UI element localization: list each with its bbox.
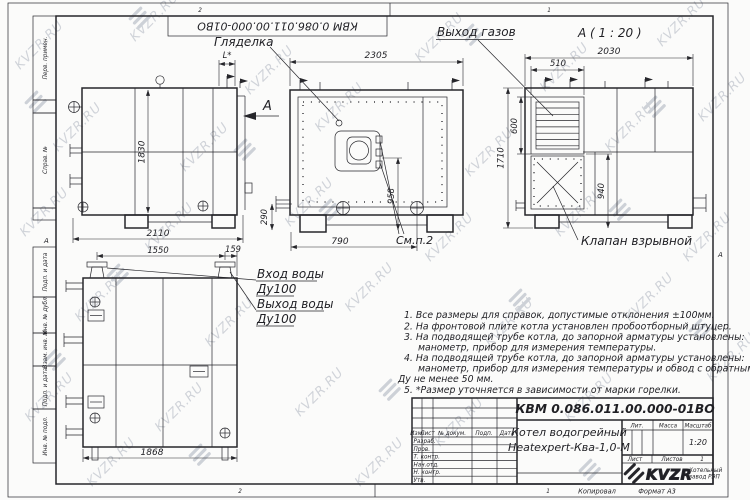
title-product-name: Котел водогрейный bbox=[511, 426, 627, 439]
leader-line bbox=[380, 163, 404, 234]
dim-value-600: 600 bbox=[509, 118, 519, 134]
note-line: 2. На фронтовой плите котла установлен п… bbox=[404, 322, 732, 333]
label-water-out: Выход воды bbox=[257, 297, 333, 311]
doc-number-rotated: КВМ 0.086.011.00.000-01ВО bbox=[197, 20, 358, 33]
note-line: манометр, прибор для измерения температу… bbox=[418, 343, 656, 354]
dim-value-940: 940 bbox=[596, 183, 606, 199]
label-see-item: См.п.2 bbox=[396, 234, 433, 247]
sheets-label: Листов bbox=[660, 457, 683, 463]
view-plan: 1550 159 1868 Вход воды Ду100 Выход воды… bbox=[64, 244, 333, 462]
margin-label: Взам. инв. № bbox=[43, 330, 49, 369]
note-line: 5. *Размер уточняется в зависимости от м… bbox=[404, 385, 681, 396]
logo-text: KVZR bbox=[646, 468, 692, 484]
hinge-tab bbox=[376, 149, 382, 156]
margin-label: Инв. № подл. bbox=[43, 416, 49, 455]
dim-value-1550: 1550 bbox=[147, 245, 168, 255]
watermark-text: KVZR.RU bbox=[242, 43, 297, 98]
dim-value-2110: 2110 bbox=[147, 229, 170, 239]
col-header-doc: № докум. bbox=[437, 431, 466, 437]
col-header-list: Лист bbox=[419, 431, 435, 437]
margin-label: Подп. и дата bbox=[43, 252, 49, 291]
flue-outlet-louver bbox=[536, 102, 579, 149]
water-flange-cap bbox=[87, 262, 107, 267]
dim-value-1710: 1710 bbox=[496, 147, 506, 168]
watermark-text: KVZR.RU bbox=[654, 0, 709, 50]
drawing-sheet: KVZR.RU KVZR.RU KVZR.RU KVZR.RU KVZR.RU … bbox=[0, 0, 750, 500]
watermark-logo-icon bbox=[24, 90, 47, 113]
section-title: А ( 1 : 20 ) bbox=[577, 26, 642, 40]
zone-number: 1 bbox=[546, 489, 550, 495]
vent-flag bbox=[227, 74, 235, 79]
watermark-text: KVZR.RU bbox=[22, 370, 77, 425]
format-label: Формат А3 bbox=[638, 488, 676, 496]
watermark-text: KVZR.RU bbox=[12, 18, 67, 73]
leader-line bbox=[380, 141, 399, 234]
row-label: Утв. bbox=[414, 478, 426, 484]
dim-value-159: 159 bbox=[225, 244, 241, 254]
hinge-tab bbox=[376, 136, 382, 143]
fold-marker: А bbox=[43, 237, 49, 245]
watermark-logo-icon bbox=[608, 198, 631, 221]
watermark-text: KVZR.RU bbox=[352, 435, 407, 490]
notes-block: 1. Все размеры для справок, допустимые о… bbox=[397, 310, 750, 396]
watermark-text: KVZR.RU bbox=[342, 260, 397, 315]
view-arrow-label: А bbox=[262, 99, 272, 114]
watermark-logo-icon bbox=[318, 198, 341, 221]
row-label: Разраб. bbox=[414, 439, 437, 445]
watermark-logo-icon bbox=[578, 458, 601, 481]
dim-value-1830: 1830 bbox=[138, 140, 148, 163]
row-label: Пров. bbox=[414, 447, 431, 453]
label-water-in: Вход воды bbox=[257, 267, 324, 281]
watermark-text: KVZR.RU bbox=[695, 70, 750, 125]
scale-value: 1:20 bbox=[689, 438, 707, 447]
margin-label: Инв. № дубл. bbox=[43, 295, 49, 334]
note-line: 1. Все размеры для справок, допустимые о… bbox=[404, 310, 715, 321]
water-flange-cap bbox=[215, 262, 235, 267]
label-explosion-valve: Клапан взрывной bbox=[581, 234, 692, 248]
dim-value-2030: 2030 bbox=[598, 47, 621, 57]
col-header-mass: Масса bbox=[659, 424, 678, 430]
sheets-value: 1 bbox=[700, 457, 704, 463]
vent-flag bbox=[570, 77, 578, 82]
logo-icon bbox=[623, 463, 645, 485]
col-header-scale: Масштаб bbox=[684, 424, 712, 430]
sheet-label: Лист bbox=[627, 457, 643, 463]
logo-subtext: Котельный bbox=[689, 468, 723, 474]
dim-value-1868: 1868 bbox=[141, 448, 164, 458]
water-flange-pipe bbox=[90, 267, 104, 278]
vent-flag bbox=[645, 77, 653, 82]
dim-value-2305: 2305 bbox=[365, 51, 388, 61]
watermark-text: KVZR.RU bbox=[292, 365, 347, 420]
title-block: КВМ 0.086.011.00.000-01ВО Котел водогрей… bbox=[410, 398, 722, 484]
foot bbox=[668, 215, 692, 228]
copied-label: Копировал bbox=[578, 488, 616, 496]
label-gas-outlet: Выход газов bbox=[437, 25, 516, 39]
margin-label: Перв. примен. bbox=[43, 36, 49, 79]
margin-label: Подп. и дата bbox=[43, 367, 49, 406]
dim-value-510: 510 bbox=[550, 58, 566, 68]
dim-value-290: 290 bbox=[259, 209, 269, 225]
fold-marker: А bbox=[717, 251, 723, 259]
zone-number: 2 bbox=[238, 489, 242, 495]
side-body bbox=[82, 88, 237, 215]
note-line: манометр, прибор для измерения температу… bbox=[418, 364, 750, 375]
col-header-sign: Подп. bbox=[475, 431, 492, 437]
foot bbox=[212, 215, 235, 228]
vent-flag bbox=[452, 78, 460, 83]
col-header-lit: Лит. bbox=[629, 424, 643, 430]
watermark-text: KVZR.RU bbox=[602, 100, 657, 155]
title-product-name: Heatexpert-Ква-1,0-М bbox=[508, 441, 630, 454]
margin-label: Справ. № bbox=[43, 146, 49, 174]
row-label: Н. контр. bbox=[414, 470, 441, 476]
watermark-text: KVZR.RU bbox=[84, 435, 139, 490]
label-water-out-dn: Ду100 bbox=[256, 312, 297, 326]
base-recess bbox=[326, 215, 427, 225]
note-line: 3. На подводящей трубе котла, до запорно… bbox=[404, 332, 745, 343]
company-logo: KVZR Котельный завод РЭП bbox=[623, 463, 722, 485]
burner-opening bbox=[350, 141, 369, 160]
watermark-text: KVZR.RU bbox=[177, 120, 232, 175]
logo-subtext: завод РЭП bbox=[689, 475, 720, 481]
watermark-text: KVZR.RU bbox=[50, 100, 105, 155]
label-sight-glass: Гляделка bbox=[214, 35, 274, 49]
row-label: Нач.отд. bbox=[414, 462, 440, 468]
lifting-lug bbox=[156, 76, 164, 84]
zone-number: 2 bbox=[198, 8, 202, 14]
watermark-text: KVZR.RU bbox=[17, 185, 72, 240]
col-header-date: Дата bbox=[499, 431, 515, 437]
watermark-text: KVZR.RU bbox=[202, 295, 257, 350]
watermark-text: KVZR.RU bbox=[152, 380, 207, 435]
water-flange-pipe bbox=[218, 267, 232, 278]
dim-value-790: 790 bbox=[331, 237, 348, 247]
row-label: Т. контр. bbox=[414, 455, 441, 461]
view-front: 2305 790 958 290 Гляделка См.п.2 bbox=[214, 35, 463, 251]
note-line: Ду не менее 50 мм. bbox=[397, 374, 493, 385]
zone-number: 1 bbox=[547, 8, 551, 14]
foot bbox=[125, 215, 148, 228]
leader-line bbox=[478, 40, 553, 116]
dim-value-l: L* bbox=[223, 50, 232, 60]
leader-line bbox=[270, 47, 339, 121]
label-water-in-dn: Ду100 bbox=[256, 282, 297, 296]
door-handle bbox=[245, 183, 252, 193]
watermark-text: KVZR.RU bbox=[432, 395, 487, 450]
watermark-text: KVZR.RU bbox=[312, 80, 367, 135]
note-line: 4. На подводящей трубе котла, до запорно… bbox=[404, 353, 745, 364]
title-doc-number: КВМ 0.086.011.00.000-01ВО bbox=[515, 402, 715, 416]
